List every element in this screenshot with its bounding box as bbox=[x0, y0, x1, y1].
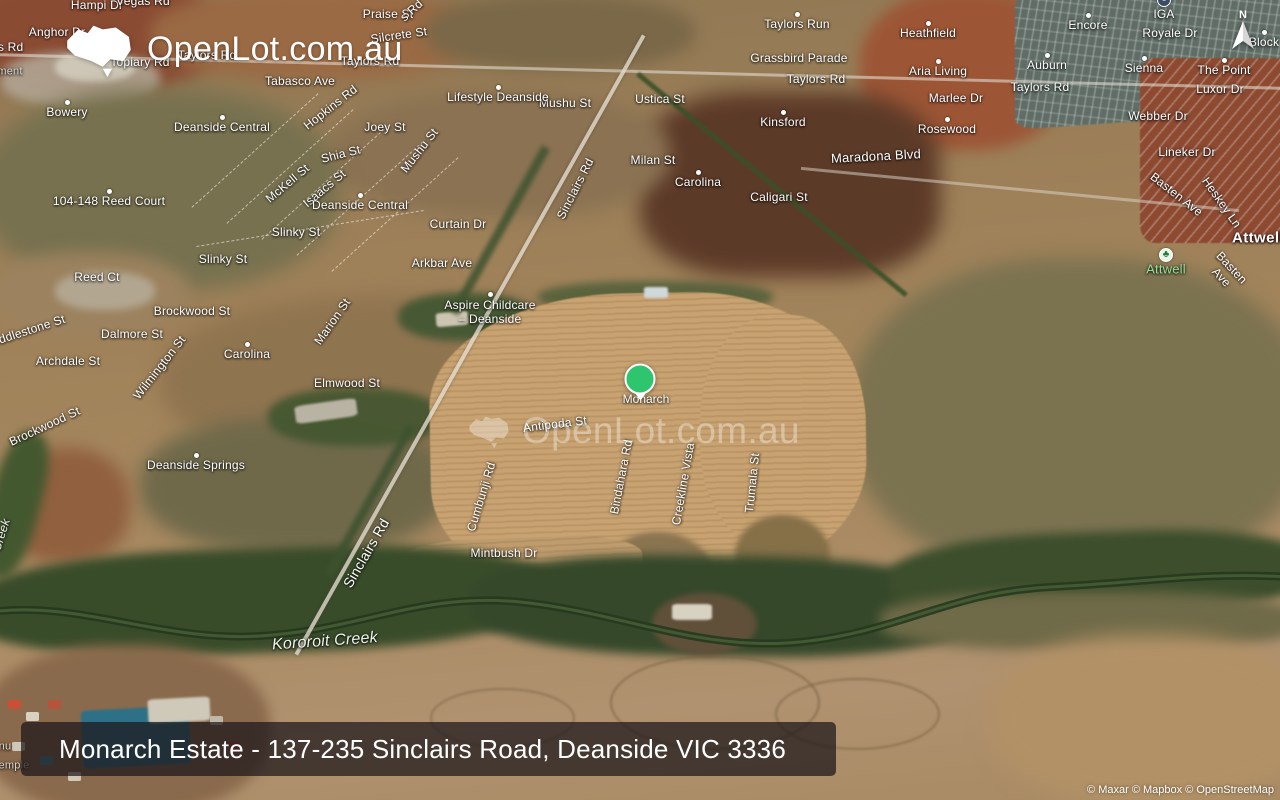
map-label: Mintbush Dr bbox=[471, 547, 538, 561]
map-label: 104-148 Reed Court bbox=[53, 195, 165, 209]
map-label: Carolina bbox=[675, 176, 721, 190]
estate-title-banner: Monarch Estate - 137-235 Sinclairs Road,… bbox=[21, 722, 836, 776]
map-label: Carolina bbox=[224, 348, 270, 362]
pin-tail bbox=[634, 393, 646, 401]
map-label: Arkbar Ave bbox=[412, 257, 472, 271]
terrain-decor bbox=[67, 26, 131, 67]
map-label: Marion St bbox=[312, 296, 354, 347]
estate-map-pin[interactable] bbox=[625, 364, 656, 395]
map-label: Creekline Vista bbox=[670, 442, 698, 527]
map-label: Ustica St bbox=[635, 93, 685, 107]
map-label: Trumala St bbox=[743, 452, 763, 513]
compass-arrow-left bbox=[1232, 21, 1243, 49]
map-label: Attwell bbox=[1146, 263, 1186, 278]
map-label: The Point bbox=[1197, 64, 1250, 78]
map-label: Heathfield bbox=[900, 27, 956, 41]
map-label: Maradona Blvd bbox=[831, 147, 922, 167]
map-label: Taylors Run bbox=[764, 18, 830, 32]
watermark-text: OpenLot.com.au bbox=[522, 410, 800, 452]
map-label: Archdale St bbox=[36, 355, 100, 369]
map-label: Lifestyle Deanside bbox=[447, 91, 549, 105]
map-label: Kororoit Creek bbox=[272, 629, 379, 655]
map-label: Wilmington St bbox=[131, 334, 189, 403]
map-label: Taylors Rd bbox=[0, 41, 23, 55]
park-icon bbox=[1159, 248, 1173, 262]
map-canvas[interactable]: Hampi DrVegas RdAnghor DrPraise Sts RdSi… bbox=[0, 0, 1280, 800]
terrain-decor bbox=[491, 443, 497, 448]
map-label: Kinsford bbox=[760, 116, 806, 130]
pin-head bbox=[625, 364, 656, 395]
map-label: Hopkins Rd bbox=[302, 83, 361, 133]
terrain-decor bbox=[469, 417, 508, 442]
map-label: Attwell bbox=[1232, 229, 1280, 246]
map-label: Reed Ct bbox=[74, 271, 119, 285]
map-label: Bowery bbox=[46, 106, 87, 120]
store-icon bbox=[1157, 0, 1171, 7]
terrain-decor bbox=[103, 69, 112, 77]
map-label: Encore bbox=[1068, 19, 1107, 33]
map-attribution[interactable]: © Maxar © Mapbox © OpenStreetMap bbox=[1087, 784, 1274, 796]
map-label: Elmwood St bbox=[314, 377, 380, 391]
map-label: Grassbird Parade bbox=[750, 52, 847, 66]
map-label: Sienna bbox=[1125, 62, 1164, 76]
map-label: Slinky St bbox=[272, 226, 320, 240]
map-label: Creek bbox=[0, 517, 14, 553]
map-label: Auburn bbox=[1027, 59, 1067, 73]
map-label: Aria Living bbox=[909, 65, 967, 79]
compass-arrow-right bbox=[1243, 21, 1254, 49]
map-label: ment bbox=[0, 66, 23, 79]
map-label: Curtain Dr bbox=[430, 218, 487, 232]
map-label: Taylors Rd bbox=[1011, 81, 1070, 95]
map-label: Luxor Dr bbox=[1196, 83, 1244, 97]
map-label: Basten Ave bbox=[1197, 244, 1254, 302]
map-label: Shia St bbox=[320, 143, 362, 166]
terrain-decor: N bbox=[1226, 6, 1260, 52]
watermark-australia-icon bbox=[466, 412, 512, 450]
map-label: Webber Dr bbox=[1128, 110, 1188, 124]
map-label: Taylors Rd bbox=[787, 73, 846, 87]
map-label: Dalmore St bbox=[101, 328, 163, 342]
map-label: Brockwood St bbox=[154, 305, 230, 319]
poi-dot bbox=[488, 292, 493, 297]
estate-title: Monarch Estate - 137-235 Sinclairs Road,… bbox=[59, 734, 786, 765]
map-label: Slinky St bbox=[199, 253, 247, 267]
map-label: Heskey Ln bbox=[1199, 175, 1244, 231]
logo-text: OpenLot.com.au bbox=[147, 30, 403, 69]
map-label: Deanside Springs bbox=[147, 459, 245, 473]
map-label: Rosewood bbox=[918, 123, 976, 137]
map-label: IGA bbox=[1153, 8, 1174, 22]
map-label: Basten Ave bbox=[1147, 170, 1205, 219]
map-label: Sinclairs Rd bbox=[555, 156, 597, 221]
map-label: Caligari St bbox=[750, 191, 808, 205]
compass-control[interactable]: N bbox=[1226, 6, 1260, 57]
map-label: Deanside Central bbox=[312, 199, 408, 213]
map-label: Middlestone St bbox=[0, 313, 67, 352]
map-label: Deanside Central bbox=[174, 121, 270, 135]
compass-north-letter: N bbox=[1239, 9, 1247, 21]
map-label: Vegas Rd bbox=[116, 0, 170, 9]
map-label: Brockwood St bbox=[7, 405, 82, 450]
australia-logo-icon bbox=[60, 20, 138, 78]
openlot-logo: OpenLot.com.au bbox=[60, 20, 403, 78]
map-label: nu bbox=[0, 741, 11, 754]
map-label: Joey St bbox=[364, 121, 405, 135]
map-label: Cumbunji Rd bbox=[465, 461, 499, 533]
map-label: Milan St bbox=[631, 154, 676, 168]
map-label: Lineker Dr bbox=[1158, 146, 1215, 160]
watermark: OpenLot.com.au bbox=[466, 410, 800, 452]
map-label: Marlee Dr bbox=[929, 92, 983, 106]
map-label: Royale Dr bbox=[1142, 27, 1197, 41]
map-label: Aspire Childcare – Deanside bbox=[444, 299, 535, 327]
